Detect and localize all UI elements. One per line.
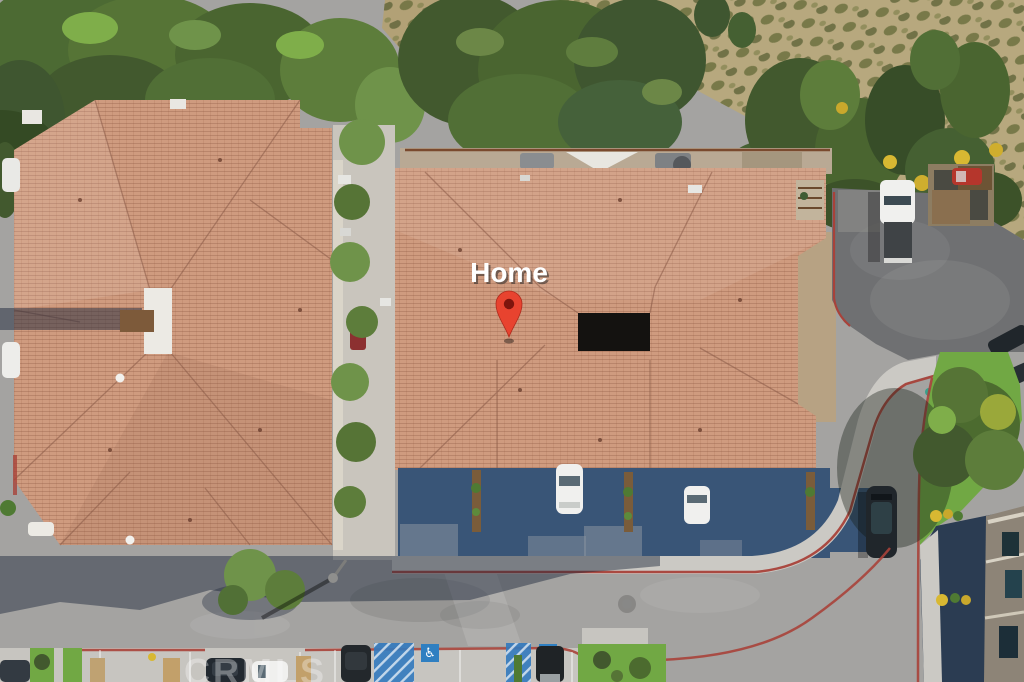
- dirt-strip: [792, 232, 836, 422]
- courtyard-opening: [578, 313, 650, 351]
- balcony-deck: [120, 310, 154, 332]
- window: [1002, 532, 1019, 556]
- handicap-symbol: ♿: [424, 645, 436, 660]
- courtyard-strip: [330, 119, 395, 560]
- planter: [806, 472, 815, 530]
- white-car-driveway-2: [684, 486, 710, 524]
- white-pickup-truck: [868, 180, 915, 263]
- planter-box: [163, 658, 180, 682]
- dark-car: [0, 660, 30, 682]
- planter-box: [90, 658, 105, 682]
- dark-car-right-road: [858, 486, 897, 558]
- home-label: Home: [470, 257, 548, 288]
- trash-enclosure: [928, 164, 994, 226]
- white-car-left-edge: [2, 158, 20, 192]
- white-car-driveway-1: [556, 464, 583, 514]
- lawn-bottom-left: [30, 648, 82, 682]
- watermark: CRMLS: [184, 651, 327, 682]
- aerial-photo: ♿ ♿ Home Home CRMLS: [0, 0, 1024, 682]
- white-car-left-edge: [2, 342, 20, 378]
- balcony-right: [796, 180, 824, 220]
- window: [999, 626, 1018, 658]
- bottom-right-building: [920, 506, 1024, 682]
- planter: [472, 470, 481, 532]
- left-building-roof: [0, 99, 332, 545]
- chimney: [22, 110, 42, 124]
- planter: [624, 472, 633, 532]
- satellite-dish: [116, 374, 125, 383]
- window: [1005, 570, 1022, 598]
